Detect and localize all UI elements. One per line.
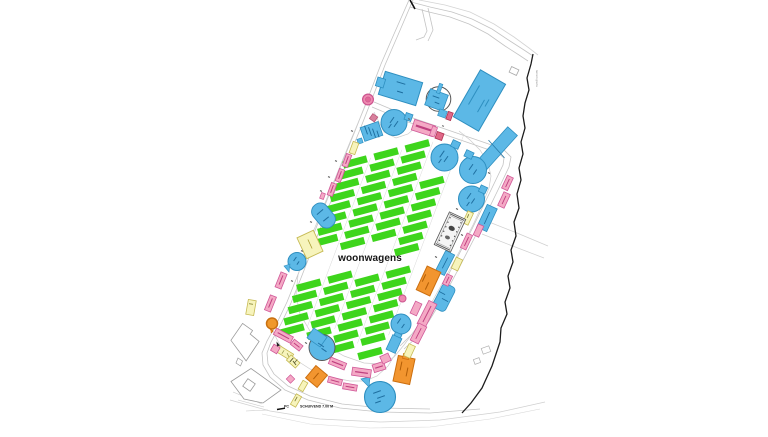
svg-text:terrein grens: terrein grens	[535, 70, 539, 87]
svg-text:SCHUIVEND 7.00 M: SCHUIVEND 7.00 M	[300, 405, 333, 409]
svg-text:woonwagens: woonwagens	[337, 253, 402, 264]
